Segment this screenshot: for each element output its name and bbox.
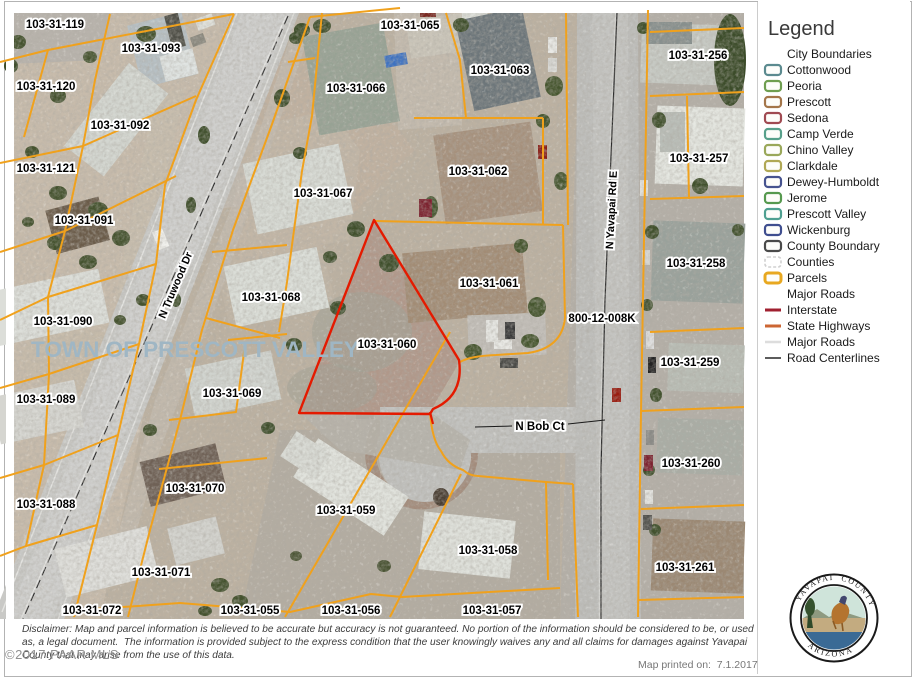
svg-text:800-12-008K: 800-12-008K <box>568 313 636 325</box>
svg-text:Dewey-Humboldt: Dewey-Humboldt <box>787 175 880 189</box>
svg-text:103-31-091: 103-31-091 <box>55 215 114 227</box>
svg-text:103-31-258: 103-31-258 <box>667 258 726 270</box>
svg-text:Jerome: Jerome <box>787 191 827 205</box>
svg-text:Major Roads: Major Roads <box>787 287 855 301</box>
svg-text:N Bob Ct: N Bob Ct <box>515 421 564 433</box>
svg-text:Prescott Valley: Prescott Valley <box>787 207 866 221</box>
svg-text:Sedona: Sedona <box>787 111 829 125</box>
svg-text:103-31-259: 103-31-259 <box>661 357 720 369</box>
svg-text:103-31-072: 103-31-072 <box>63 605 122 617</box>
svg-text:Cottonwood: Cottonwood <box>787 63 851 77</box>
svg-text:103-31-066: 103-31-066 <box>327 83 386 95</box>
svg-text:103-31-059: 103-31-059 <box>317 505 376 517</box>
svg-text:103-31-089: 103-31-089 <box>17 394 76 406</box>
svg-text:103-31-120: 103-31-120 <box>17 81 76 93</box>
svg-text:Counties: Counties <box>787 255 834 269</box>
svg-text:City Boundaries: City Boundaries <box>787 47 872 61</box>
svg-text:103-31-071: 103-31-071 <box>132 567 191 579</box>
svg-text:Interstate: Interstate <box>787 303 837 317</box>
svg-text:103-31-060: 103-31-060 <box>358 339 417 351</box>
svg-text:103-31-056: 103-31-056 <box>322 605 381 617</box>
svg-text:Camp Verde: Camp Verde <box>787 127 854 141</box>
svg-text:103-31-093: 103-31-093 <box>122 43 181 55</box>
svg-text:103-31-256: 103-31-256 <box>669 50 728 62</box>
svg-text:Wickenburg: Wickenburg <box>787 223 850 237</box>
svg-text:103-31-061: 103-31-061 <box>460 278 519 290</box>
svg-text:103-31-065: 103-31-065 <box>381 20 440 32</box>
svg-text:103-31-090: 103-31-090 <box>34 316 93 328</box>
svg-text:State Highways: State Highways <box>787 319 870 333</box>
svg-text:Parcels: Parcels <box>787 271 827 285</box>
svg-text:103-31-069: 103-31-069 <box>203 388 262 400</box>
svg-text:103-31-067: 103-31-067 <box>294 188 353 200</box>
svg-text:103-31-068: 103-31-068 <box>242 292 301 304</box>
svg-text:103-31-063: 103-31-063 <box>471 65 530 77</box>
svg-text:103-31-058: 103-31-058 <box>459 545 518 557</box>
svg-text:103-31-257: 103-31-257 <box>670 153 729 165</box>
svg-text:103-31-057: 103-31-057 <box>463 605 522 617</box>
svg-text:TOWN OF PRESCOTT VALLEY: TOWN OF PRESCOTT VALLEY <box>31 337 359 362</box>
svg-text:103-31-062: 103-31-062 <box>449 166 508 178</box>
svg-text:103-31-055: 103-31-055 <box>221 605 280 617</box>
svg-text:County Boundary: County Boundary <box>787 239 880 253</box>
svg-text:103-31-092: 103-31-092 <box>91 120 150 132</box>
svg-text:103-31-070: 103-31-070 <box>166 483 225 495</box>
svg-text:103-31-121: 103-31-121 <box>17 163 76 175</box>
svg-text:103-31-088: 103-31-088 <box>17 499 76 511</box>
svg-text:Major Roads: Major Roads <box>787 335 855 349</box>
svg-text:Peoria: Peoria <box>787 79 822 93</box>
svg-text:Chino Valley: Chino Valley <box>787 143 853 157</box>
svg-text:Road Centerlines: Road Centerlines <box>787 351 880 365</box>
svg-text:103-31-261: 103-31-261 <box>656 562 715 574</box>
svg-text:Prescott: Prescott <box>787 95 832 109</box>
svg-text:Clarkdale: Clarkdale <box>787 159 838 173</box>
svg-text:103-31-260: 103-31-260 <box>662 458 721 470</box>
svg-text:103-31-119: 103-31-119 <box>26 19 84 31</box>
